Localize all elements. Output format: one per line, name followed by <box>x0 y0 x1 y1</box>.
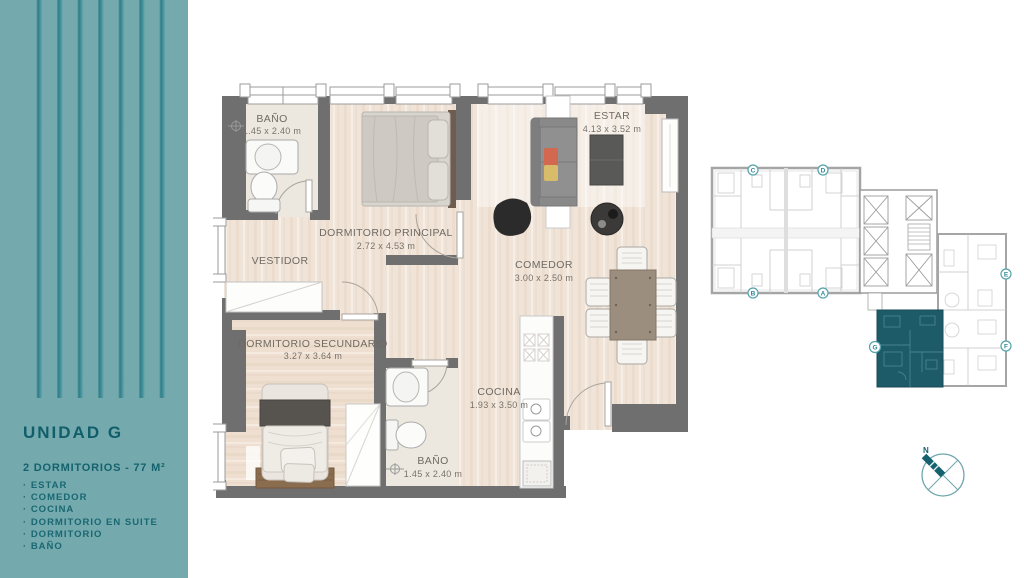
armchair-icon <box>493 198 531 235</box>
room-label: BAÑO <box>256 112 287 125</box>
window <box>488 87 543 104</box>
toilet-tank-icon <box>248 199 280 212</box>
unit-title: UNIDAD G <box>23 423 123 443</box>
toilet-icon <box>396 422 426 448</box>
keyplan-unit-g-highlight <box>877 310 943 387</box>
feature-item: ESTAR <box>23 480 158 492</box>
room-label: BAÑO <box>417 454 448 467</box>
room-dims: 3.00 x 2.50 m <box>515 273 573 283</box>
wall-segment <box>222 96 246 218</box>
feature-item: COMEDOR <box>23 492 158 504</box>
window <box>330 87 384 104</box>
toilet-icon <box>251 172 277 202</box>
compass-needle <box>924 456 943 475</box>
pillow <box>428 120 448 158</box>
svg-text:G: G <box>872 345 877 352</box>
room-dims: 1.93 x 3.50 m <box>470 400 528 410</box>
vestidor-closet-icon <box>226 282 322 312</box>
door-leaf <box>457 212 463 258</box>
room-label: COMEDOR <box>515 259 573 271</box>
room-dims: 2.72 x 4.53 m <box>357 241 415 251</box>
keyplan-main-block <box>712 168 860 293</box>
feature-list: ESTAR COMEDOR COCINA DORMITORIO EN SUITE… <box>23 480 158 553</box>
room-label: DORMITORIO PRINCIPAL <box>319 227 453 239</box>
room-label: VESTIDOR <box>252 255 309 267</box>
sofa-icon <box>531 118 577 206</box>
wall-segment <box>310 210 330 220</box>
room-label: COCINA <box>477 386 520 398</box>
room-dims: 1.45 x 2.40 m <box>404 469 462 479</box>
brochure-page: UNIDAD G 2 DORMITORIOS - 77 M² ESTAR COM… <box>0 0 1024 578</box>
stairs-icon <box>908 224 930 250</box>
room-dims: 4.13 x 3.52 m <box>583 124 641 134</box>
unit-floor-plan: BAÑO 1.45 x 2.40 m DORMITORIO PRINCIPAL … <box>213 80 703 510</box>
wall-segment <box>386 358 414 368</box>
wall-segment <box>456 96 471 200</box>
svg-text:B: B <box>751 291 756 298</box>
wall-segment <box>318 96 330 220</box>
unit-subtitle: 2 DORMITORIOS - 77 M² <box>23 462 166 474</box>
door-leaf <box>342 314 378 320</box>
svg-text:F: F <box>1004 344 1008 351</box>
room-dims: 1.45 x 2.40 m <box>243 126 301 136</box>
svg-text:C: C <box>751 168 756 175</box>
window <box>396 87 452 104</box>
feature-item: DORMITORIO <box>23 529 158 541</box>
pillow <box>284 463 315 482</box>
yellow-pillow <box>544 165 558 181</box>
feature-item: DORMITORIO EN SUITE <box>23 517 158 529</box>
door-leaf <box>306 180 312 212</box>
north-label: N <box>923 446 929 455</box>
wall-segment <box>612 404 688 432</box>
window <box>213 424 226 490</box>
feature-item: COCINA <box>23 504 158 516</box>
console-icon <box>662 119 678 192</box>
keyplan-right-wing <box>938 234 1006 386</box>
blanket <box>260 400 330 426</box>
room-label: ESTAR <box>594 110 630 122</box>
window <box>213 218 226 282</box>
secondary-closet-icon <box>346 404 380 486</box>
svg-text:D: D <box>821 168 826 175</box>
keyplan-core <box>860 190 937 310</box>
corridor-link <box>868 293 882 310</box>
tv-table-icon <box>590 135 623 185</box>
red-pillow <box>544 148 558 166</box>
window <box>248 87 318 104</box>
entry-door-leaf <box>605 382 611 426</box>
wall-segment <box>553 316 564 492</box>
decorative-stripes <box>22 0 172 398</box>
room-label: DORMITORIO SECUNDARIO <box>238 338 387 350</box>
round-table-icon <box>591 203 623 235</box>
building-key-plan: C D B A E F G <box>700 155 1020 400</box>
side-table-icon <box>546 96 570 120</box>
feature-item: BAÑO <box>23 541 158 553</box>
master-bed-icon <box>362 110 456 208</box>
basin-icon <box>255 144 281 170</box>
north-compass-icon: N <box>912 444 976 508</box>
pillow <box>428 162 448 200</box>
fridge-icon <box>523 461 551 486</box>
room-dims: 3.27 x 3.64 m <box>284 351 342 361</box>
sidebar: UNIDAD G 2 DORMITORIOS - 77 M² ESTAR COM… <box>0 0 188 578</box>
door-leaf <box>412 360 448 366</box>
window <box>617 87 643 104</box>
svg-text:A: A <box>821 291 826 298</box>
basin-icon <box>393 372 419 402</box>
svg-text:E: E <box>1004 272 1009 279</box>
